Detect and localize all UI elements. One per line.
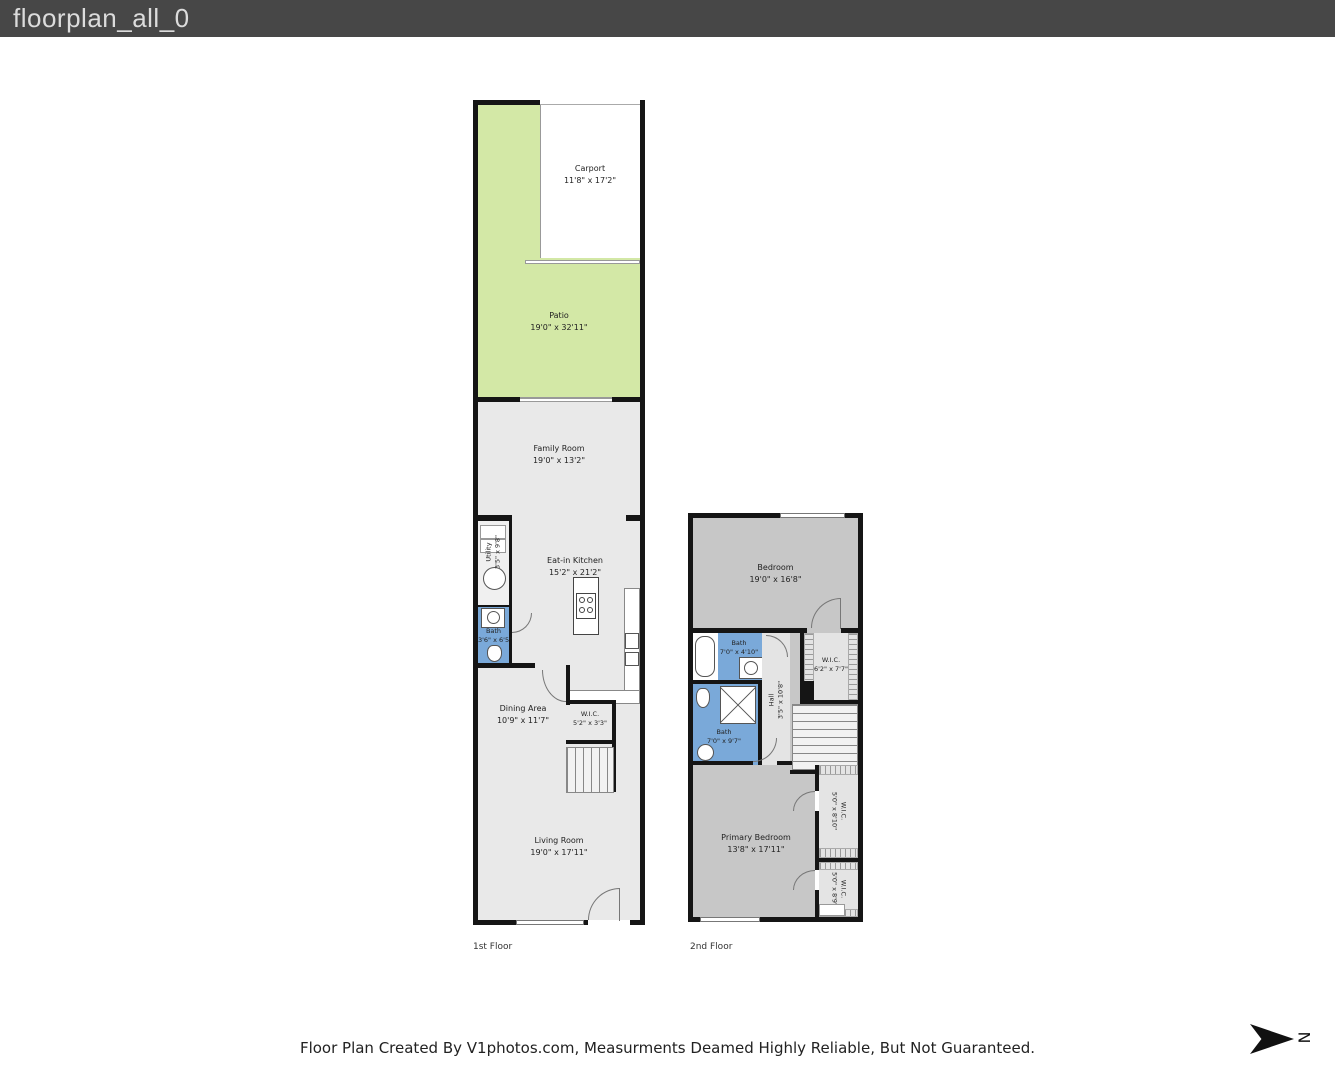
floor-label-1: 1st Floor bbox=[473, 942, 512, 952]
closet-door bbox=[819, 904, 845, 916]
closet-shelving bbox=[819, 862, 858, 870]
wall bbox=[566, 740, 616, 744]
sink-basin bbox=[744, 661, 758, 675]
washer-icon bbox=[483, 567, 506, 590]
room-label: W.I.C.5'2" x 3'3" bbox=[566, 710, 614, 729]
door-opening bbox=[815, 870, 819, 890]
wall bbox=[566, 665, 570, 705]
door-arc bbox=[793, 870, 815, 890]
room-label: Patio19'0" x 32'11" bbox=[478, 310, 640, 335]
wall bbox=[478, 663, 535, 668]
closet-shelving bbox=[819, 765, 858, 775]
kitchen-appliance bbox=[625, 633, 639, 649]
room-label: Utility3'5" x 9'8" bbox=[485, 535, 504, 569]
floorplan-viewer: floorplan_all_0 Carport11'8" x 17'2" Pat… bbox=[0, 0, 1335, 1080]
room-label: Bath3'6" x 6'5" bbox=[478, 627, 509, 646]
closet-shelving bbox=[819, 848, 858, 858]
title-bar: floorplan_all_0 bbox=[0, 0, 1335, 37]
wall bbox=[777, 761, 792, 765]
bathtub bbox=[695, 636, 715, 677]
floor-label-2: 2nd Floor bbox=[690, 942, 732, 952]
second-floor-plan: Bedroom19'0" x 16'8" Bath7'0" x 4'10" Ba… bbox=[688, 513, 863, 922]
toilet bbox=[696, 688, 710, 708]
door-leaf bbox=[619, 888, 620, 921]
sliding-door bbox=[520, 397, 612, 402]
door-leaf bbox=[840, 598, 841, 629]
north-label: N bbox=[1294, 1032, 1313, 1044]
door-arc bbox=[588, 888, 620, 920]
compass: N bbox=[1250, 1022, 1335, 1062]
room-label: W.I.C.5'0" x 8'10" bbox=[829, 792, 848, 830]
room-label: Living Room19'0" x 17'11" bbox=[478, 835, 640, 860]
first-floor-plan: Carport11'8" x 17'2" Patio19'0" x 32'11"… bbox=[473, 100, 645, 925]
wall bbox=[626, 515, 640, 521]
front-door-opening bbox=[588, 920, 630, 925]
room-label: Bedroom19'0" x 16'8" bbox=[693, 562, 858, 587]
door-arc bbox=[512, 613, 532, 633]
staircase bbox=[792, 704, 858, 770]
disclaimer-text: Floor Plan Created By V1photos.com, Meas… bbox=[0, 1039, 1335, 1057]
north-arrow-icon bbox=[1250, 1024, 1294, 1054]
window bbox=[516, 920, 584, 925]
sink-basin bbox=[487, 611, 500, 624]
carport-ledge bbox=[525, 260, 640, 264]
toilet bbox=[487, 645, 502, 662]
sink-basin bbox=[697, 744, 714, 761]
staircase bbox=[566, 747, 614, 793]
wall bbox=[693, 761, 753, 765]
door-arc bbox=[811, 598, 841, 628]
door-arc bbox=[542, 670, 566, 702]
wall bbox=[566, 700, 616, 704]
carport-open-edge bbox=[540, 100, 640, 105]
window-title: floorplan_all_0 bbox=[0, 0, 1335, 36]
room-label: Carport11'8" x 17'2" bbox=[540, 163, 640, 188]
room-label: Bath7'0" x 4'10" bbox=[713, 639, 765, 658]
room-label: W.I.C.5'0" x 8'9" bbox=[829, 872, 848, 906]
window bbox=[700, 917, 760, 922]
kitchen-appliance bbox=[625, 652, 639, 666]
room-label: Hall3'5" x 10'8" bbox=[768, 681, 787, 719]
shower bbox=[720, 686, 756, 724]
room-label: Family Room19'0" x 13'2" bbox=[478, 443, 640, 468]
room-label: Dining Area10'9" x 11'7" bbox=[478, 703, 568, 728]
closet-block bbox=[800, 681, 814, 700]
window bbox=[780, 513, 845, 518]
room-label: Primary Bedroom13'8" x 17'11" bbox=[693, 832, 819, 857]
stove bbox=[576, 593, 596, 619]
door-opening bbox=[815, 791, 819, 811]
room-label: W.I.C.6'2" x 7'7" bbox=[804, 656, 858, 675]
door-arc bbox=[793, 791, 815, 811]
